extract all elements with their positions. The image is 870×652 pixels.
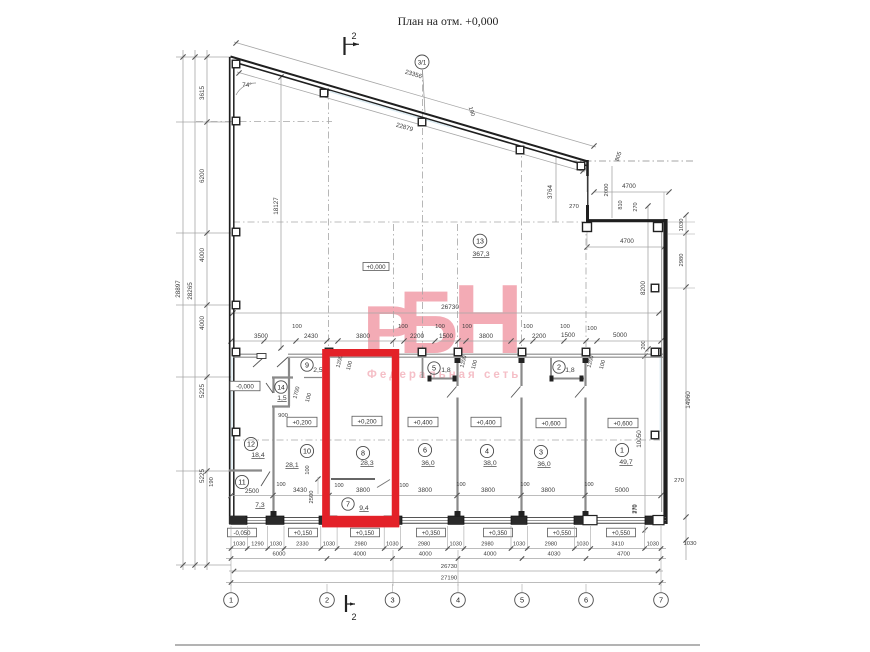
svg-text:2330: 2330: [296, 542, 308, 548]
svg-text:+0,200: +0,200: [292, 419, 312, 426]
svg-text:367,3: 367,3: [472, 251, 489, 258]
svg-text:18,4: 18,4: [251, 452, 264, 459]
svg-text:1030: 1030: [513, 542, 525, 548]
svg-text:36,0: 36,0: [421, 460, 434, 467]
svg-text:100: 100: [305, 465, 311, 474]
svg-text:810: 810: [618, 200, 624, 209]
svg-text:1: 1: [229, 596, 233, 605]
svg-text:28,1: 28,1: [285, 462, 298, 469]
svg-text:100: 100: [456, 482, 465, 488]
svg-text:28,3: 28,3: [360, 460, 373, 467]
svg-text:-0,000: -0,000: [236, 383, 254, 390]
svg-text:5225: 5225: [199, 384, 206, 399]
svg-text:1030: 1030: [323, 542, 335, 548]
svg-text:100: 100: [560, 324, 570, 330]
svg-text:26730: 26730: [441, 304, 459, 311]
svg-text:26730: 26730: [441, 564, 458, 570]
svg-text:100: 100: [334, 483, 343, 489]
svg-text:+0,150: +0,150: [356, 531, 375, 537]
svg-text:2: 2: [557, 363, 561, 372]
svg-text:2500: 2500: [245, 488, 260, 495]
svg-text:1030: 1030: [684, 541, 697, 547]
svg-text:5225: 5225: [199, 469, 206, 484]
svg-text:28265: 28265: [187, 282, 194, 300]
svg-text:270: 270: [674, 478, 684, 484]
svg-text:3410: 3410: [611, 542, 623, 548]
svg-text:1030: 1030: [679, 219, 685, 232]
svg-text:1: 1: [620, 446, 624, 455]
svg-text:4000: 4000: [199, 316, 206, 331]
svg-text:9: 9: [305, 361, 309, 370]
svg-text:3800: 3800: [481, 487, 496, 494]
svg-text:11: 11: [238, 478, 245, 487]
svg-text:3764: 3764: [547, 185, 554, 200]
svg-text:100: 100: [584, 482, 593, 488]
svg-text:5: 5: [432, 364, 436, 373]
svg-text:1,8: 1,8: [441, 367, 451, 374]
svg-text:2: 2: [351, 612, 356, 622]
svg-text:9,4: 9,4: [359, 505, 369, 512]
svg-text:+0,000: +0,000: [366, 264, 386, 271]
svg-text:3800: 3800: [356, 487, 371, 494]
svg-text:4030: 4030: [547, 552, 561, 558]
svg-text:6000: 6000: [272, 552, 286, 558]
svg-text:+0,400: +0,400: [476, 419, 496, 426]
svg-text:3430: 3430: [293, 487, 308, 494]
svg-text:+0,400: +0,400: [413, 419, 433, 426]
svg-text:200: 200: [641, 340, 647, 349]
svg-text:2980: 2980: [354, 542, 366, 548]
svg-text:7: 7: [346, 500, 350, 509]
svg-text:900: 900: [278, 413, 288, 419]
svg-text:1500: 1500: [439, 333, 454, 340]
svg-text:+0,600: +0,600: [613, 420, 633, 427]
svg-text:4000: 4000: [483, 552, 497, 558]
svg-text:2980: 2980: [679, 254, 685, 267]
svg-text:1,8: 1,8: [565, 367, 575, 374]
svg-text:1,5: 1,5: [277, 395, 287, 402]
svg-text:14: 14: [277, 385, 285, 392]
svg-text:2980: 2980: [545, 542, 557, 548]
svg-text:3800: 3800: [479, 333, 494, 340]
svg-text:4000: 4000: [353, 552, 367, 558]
svg-text:-0,050: -0,050: [233, 531, 251, 537]
svg-text:28897: 28897: [175, 280, 182, 298]
svg-text:10050: 10050: [636, 430, 643, 448]
svg-text:1500: 1500: [561, 332, 576, 339]
svg-text:100: 100: [398, 324, 408, 330]
svg-text:10: 10: [303, 447, 311, 456]
svg-text:+0,200: +0,200: [357, 418, 377, 425]
svg-text:14960: 14960: [685, 391, 692, 409]
svg-text:2: 2: [325, 596, 329, 605]
svg-text:1290: 1290: [251, 542, 263, 548]
svg-text:7,3: 7,3: [255, 502, 265, 509]
svg-text:100: 100: [523, 324, 533, 330]
svg-text:100: 100: [276, 482, 285, 488]
svg-text:3800: 3800: [418, 487, 433, 494]
svg-text:270: 270: [632, 504, 638, 513]
svg-text:+0,150: +0,150: [294, 531, 313, 537]
svg-text:38,0: 38,0: [483, 460, 496, 467]
svg-text:5000: 5000: [615, 487, 630, 494]
svg-text:100: 100: [292, 324, 302, 330]
svg-text:49,7: 49,7: [619, 459, 632, 466]
svg-text:+0,550: +0,550: [553, 531, 572, 537]
svg-text:2: 2: [351, 31, 356, 41]
svg-text:+0,350: +0,350: [489, 531, 508, 537]
svg-text:4000: 4000: [199, 248, 206, 263]
svg-text:2,5: 2,5: [313, 367, 323, 374]
svg-text:6: 6: [584, 596, 588, 605]
svg-text:1030: 1030: [233, 542, 245, 548]
svg-text:3800: 3800: [356, 333, 371, 340]
svg-text:4700: 4700: [617, 552, 631, 558]
svg-text:190: 190: [209, 477, 215, 487]
svg-text:5000: 5000: [613, 332, 628, 339]
svg-text:18127: 18127: [273, 197, 280, 215]
svg-text:3800: 3800: [541, 487, 556, 494]
svg-text:3: 3: [390, 596, 394, 605]
svg-text:4700: 4700: [620, 238, 634, 245]
svg-text:100: 100: [399, 483, 408, 489]
svg-text:100: 100: [462, 324, 472, 330]
svg-text:4: 4: [456, 596, 460, 605]
svg-text:3500: 3500: [254, 333, 269, 340]
svg-text:+0,350: +0,350: [422, 531, 441, 537]
svg-text:270: 270: [569, 204, 579, 210]
svg-text:2980: 2980: [418, 542, 430, 548]
svg-text:100: 100: [435, 324, 445, 330]
svg-text:2980: 2980: [481, 542, 493, 548]
svg-text:8: 8: [361, 449, 365, 458]
svg-text:4: 4: [485, 447, 489, 456]
svg-text:270: 270: [633, 202, 639, 211]
svg-text:4000: 4000: [419, 552, 433, 558]
svg-text:13: 13: [476, 239, 484, 246]
svg-text:1030: 1030: [647, 542, 659, 548]
svg-text:+0,550: +0,550: [612, 531, 631, 537]
svg-text:2000: 2000: [604, 184, 610, 197]
svg-text:6: 6: [423, 446, 427, 455]
svg-text:1030: 1030: [270, 542, 282, 548]
svg-text:100: 100: [520, 482, 529, 488]
svg-text:8200: 8200: [640, 281, 647, 296]
svg-text:2200: 2200: [532, 333, 547, 340]
svg-text:1030: 1030: [576, 542, 588, 548]
svg-text:1030: 1030: [386, 542, 398, 548]
svg-text:+0,600: +0,600: [541, 420, 561, 427]
svg-text:27190: 27190: [441, 576, 458, 582]
svg-text:5: 5: [520, 596, 524, 605]
svg-text:7: 7: [659, 596, 663, 605]
svg-text:36,0: 36,0: [537, 461, 550, 468]
svg-text:2430: 2430: [304, 333, 319, 340]
svg-text:3615: 3615: [199, 86, 206, 101]
svg-text:12: 12: [247, 440, 255, 449]
svg-text:2500: 2500: [309, 491, 315, 504]
svg-text:План на отм. +0,000: План на отм. +0,000: [398, 14, 499, 28]
svg-text:6200: 6200: [199, 169, 206, 184]
svg-text:100: 100: [587, 326, 597, 332]
svg-text:2200: 2200: [410, 333, 425, 340]
svg-text:4700: 4700: [622, 183, 636, 190]
svg-text:3: 3: [539, 448, 543, 457]
svg-text:3/1: 3/1: [418, 61, 427, 67]
svg-text:1030: 1030: [450, 542, 462, 548]
